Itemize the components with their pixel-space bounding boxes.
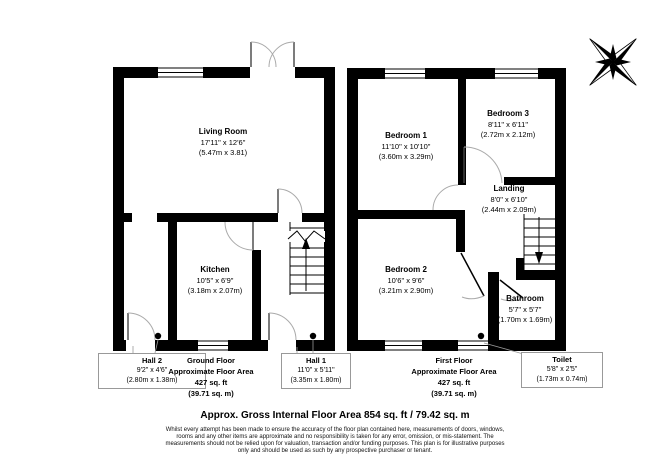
ground-floor-stairs — [288, 222, 325, 295]
floor-area-m: (39.71 sq. m) — [168, 388, 253, 399]
disclaimer-text: Whilst every attempt has been made to en… — [0, 427, 670, 455]
room-dim-imperial: 5'7" x 5'7" — [498, 305, 553, 316]
room-name: Bathroom — [498, 294, 553, 305]
room-dim-imperial: 10'5" x 6'9" — [188, 276, 243, 287]
floor-area-ft: 427 sq. ft — [168, 377, 253, 388]
first-floor-door-stops — [478, 333, 484, 339]
room-label-bedroom-3: Bedroom 3 8'11" x 6'11" (2.72m x 2.12m) — [481, 109, 536, 141]
room-label-bathroom: Bathroom 5'7" x 5'7" (1.70m x 1.69m) — [498, 294, 553, 326]
stairs-down-arrow — [535, 252, 543, 264]
floor-subtitle: Approximate Floor Area — [168, 366, 253, 377]
floor-subtitle: Approximate Floor Area — [411, 366, 496, 377]
room-dim-imperial: 5'8" x 2'5" — [525, 365, 599, 375]
box-label-toilet: Toilet 5'8" x 2'5" (1.73m x 0.74m) — [521, 352, 603, 388]
room-label-kitchen: Kitchen 10'5" x 6'9" (3.18m x 2.07m) — [188, 265, 243, 297]
floor-area-m: (39.71 sq. m) — [411, 388, 496, 399]
room-label-living-room: Living Room 17'11" x 12'6" (5.47m x 3.81… — [199, 127, 247, 159]
disclaimer-line-3: measurements should not be relied upon f… — [0, 441, 670, 448]
room-name: Hall 1 — [285, 356, 347, 366]
floorplan-drawing — [0, 0, 670, 473]
room-name: Kitchen — [188, 265, 243, 276]
room-label-bedroom-1: Bedroom 1 11'10" x 10'10" (3.60m x 3.29m… — [379, 131, 434, 163]
room-dim-imperial: 11'0" x 5'11" — [285, 366, 347, 376]
disclaimer-line-2: rooms and any other items are approximat… — [0, 434, 670, 441]
floorplan-page: Living Room 17'11" x 12'6" (5.47m x 3.81… — [0, 0, 670, 473]
room-dim-metric: (3.21m x 2.90m) — [379, 286, 434, 297]
room-name: Bedroom 1 — [379, 131, 434, 142]
floor-area-ft: 427 sq. ft — [411, 377, 496, 388]
room-dim-imperial: 11'10" x 10'10" — [379, 142, 434, 153]
first-floor-title-block: First Floor Approximate Floor Area 427 s… — [411, 355, 496, 399]
box-label-hall-1: Hall 1 11'0" x 5'11" (3.35m x 1.80m) — [281, 353, 351, 389]
compass-rose-icon — [586, 35, 639, 88]
room-dim-imperial: 8'11" x 6'11" — [481, 120, 536, 131]
room-dim-metric: (3.35m x 1.80m) — [285, 376, 347, 386]
ground-floor-door-stops — [155, 333, 316, 339]
room-dim-metric: (1.73m x 0.74m) — [525, 375, 599, 385]
room-dim-metric: (1.70m x 1.69m) — [498, 315, 553, 326]
room-dim-metric: (2.72m x 2.12m) — [481, 130, 536, 141]
room-label-bedroom-2: Bedroom 2 10'6" x 9'6" (3.21m x 2.90m) — [379, 265, 434, 297]
ground-floor-plan — [113, 42, 335, 351]
room-name: Bedroom 2 — [379, 265, 434, 276]
room-dim-imperial: 10'6" x 9'6" — [379, 276, 434, 287]
room-name: Bedroom 3 — [481, 109, 536, 120]
first-floor-doors — [433, 147, 523, 301]
room-dim-metric: (3.18m x 2.07m) — [188, 286, 243, 297]
room-dim-metric: (2.44m x 2.09m) — [482, 205, 537, 216]
room-name: Living Room — [199, 127, 247, 138]
floor-title: First Floor — [411, 355, 496, 366]
room-name: Toilet — [525, 355, 599, 365]
room-dim-imperial: 8'0" x 6'10" — [482, 195, 537, 206]
ground-floor-title-block: Ground Floor Approximate Floor Area 427 … — [168, 355, 253, 399]
room-dim-imperial: 17'11" x 12'6" — [199, 138, 247, 149]
gross-internal-area-headline: Approx. Gross Internal Floor Area 854 sq… — [0, 410, 670, 421]
room-dim-metric: (5.47m x 3.81) — [199, 148, 247, 159]
disclaimer-line-4: only and should be used as such by any p… — [0, 448, 670, 455]
room-label-landing: Landing 8'0" x 6'10" (2.44m x 2.09m) — [482, 184, 537, 216]
room-name: Landing — [482, 184, 537, 195]
disclaimer-line-1: Whilst every attempt has been made to en… — [0, 427, 670, 434]
floor-title: Ground Floor — [168, 355, 253, 366]
room-dim-metric: (3.60m x 3.29m) — [379, 152, 434, 163]
first-floor-stairs — [524, 214, 555, 270]
